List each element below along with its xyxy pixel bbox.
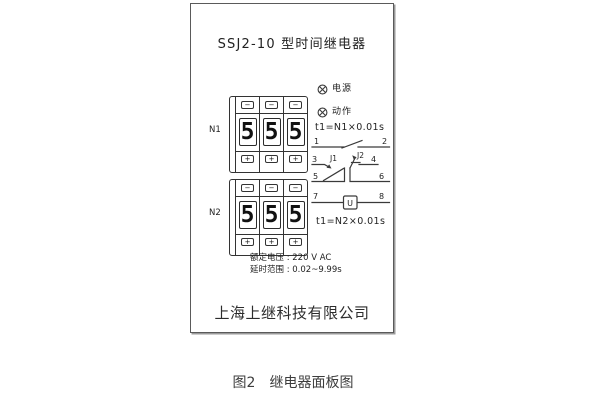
terminal-6: 6 (379, 172, 384, 181)
n1-digit-units: 5 (289, 121, 303, 144)
n1-digit-hundreds: 5 (241, 121, 255, 144)
thumbwheel-n2-label: N2 (209, 208, 221, 218)
thumbwheel-n1: − 5 + − 5 + − 5 + (229, 96, 308, 173)
figure-caption: 图2继电器面板图 (190, 372, 396, 392)
thumbwheel-n2-column-hundreds: − 5 + (236, 180, 260, 255)
coil-u-label: U (344, 198, 357, 209)
panel-title: SSJ2-10 型时间继电器 (191, 33, 393, 52)
n2-tens-minus-button[interactable]: − (265, 184, 278, 192)
formula-n1: t1=N1×0.01s (315, 122, 384, 133)
delay-range-text: 延时范围 : 0.02~9.99s (250, 265, 342, 276)
n2-hundreds-plus-button[interactable]: + (241, 238, 254, 246)
power-lamp-label: 电源 (332, 84, 352, 95)
formula-n2: t1=N2×0.01s (316, 216, 385, 227)
manufacturer-name: 上海上继科技有限公司 (191, 302, 393, 323)
action-lamp-label: 动作 (332, 107, 352, 118)
thumbwheel-n1-column-hundreds: − 5 + (236, 97, 260, 172)
thumbwheel-n2: − 5 + − 5 + − 5 + (229, 179, 308, 256)
n2-digit-hundreds: 5 (241, 204, 255, 227)
digit-window: 5 (239, 118, 257, 146)
thumbwheel-n1-column-tens: − 5 + (260, 97, 284, 172)
digit-window: 5 (263, 201, 281, 229)
n1-tens-minus-button[interactable]: − (265, 101, 278, 109)
n2-digit-tens: 5 (265, 204, 279, 227)
n2-digit-units: 5 (289, 204, 303, 227)
n2-tens-plus-button[interactable]: + (265, 238, 278, 246)
thumbwheel-n2-column-units: − 5 + (284, 180, 307, 255)
n2-units-minus-button[interactable]: − (289, 184, 302, 192)
terminal-8: 8 (379, 192, 384, 201)
n2-units-plus-button[interactable]: + (289, 238, 302, 246)
n1-digit-tens: 5 (265, 121, 279, 144)
digit-window: 5 (239, 201, 257, 229)
terminal-2: 2 (382, 137, 387, 146)
contact-j2-label: J2 (357, 152, 364, 160)
figure-caption-text: 继电器面板图 (269, 375, 353, 391)
figure-number: 图2 (233, 375, 256, 391)
terminal-3: 3 (312, 155, 317, 164)
power-lamp-icon (317, 84, 328, 95)
digit-window: 5 (263, 118, 281, 146)
n2-hundreds-minus-button[interactable]: − (241, 184, 254, 192)
terminal-4: 4 (371, 155, 376, 164)
digit-window: 5 (287, 201, 305, 229)
terminal-5: 5 (313, 172, 318, 181)
thumbwheel-n1-label: N1 (209, 125, 221, 135)
n1-hundreds-plus-button[interactable]: + (241, 155, 254, 163)
terminal-7: 7 (313, 192, 318, 201)
relay-front-panel: SSJ2-10 型时间继电器 电源 动作 t1=N1×0.01s N1 − 5 … (190, 3, 394, 333)
n1-tens-plus-button[interactable]: + (265, 155, 278, 163)
thumbwheel-n1-column-units: − 5 + (284, 97, 307, 172)
n1-units-minus-button[interactable]: − (289, 101, 302, 109)
n1-units-plus-button[interactable]: + (289, 155, 302, 163)
digit-window: 5 (287, 118, 305, 146)
terminal-1: 1 (314, 137, 319, 146)
thumbwheel-n2-column-tens: − 5 + (260, 180, 284, 255)
n1-hundreds-minus-button[interactable]: − (241, 101, 254, 109)
action-lamp-icon (317, 107, 328, 118)
figure-relay-panel: SSJ2-10 型时间继电器 电源 动作 t1=N1×0.01s N1 − 5 … (0, 0, 600, 400)
rated-voltage-text: 额定电压 : 220 V AC (250, 253, 331, 264)
contact-j1-label: J1 (330, 155, 337, 163)
